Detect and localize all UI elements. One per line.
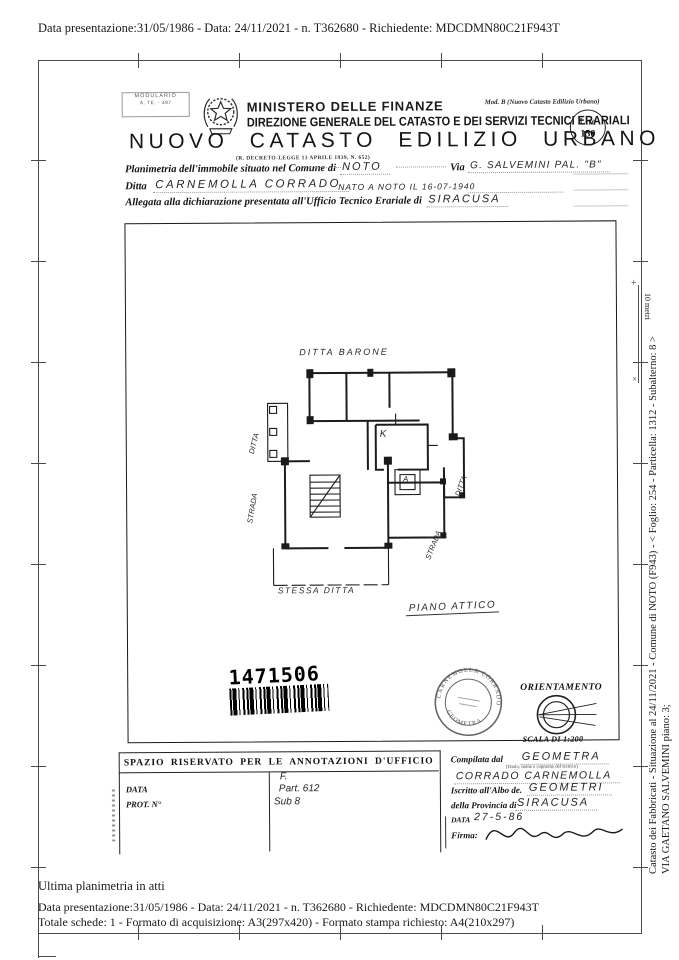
stamp-text-top: CARNEMOLLA CORRADO <box>436 662 507 709</box>
margin-caption: Catasto dei Fabbricati - Situazione al 2… <box>648 274 673 874</box>
lire-word: Lire <box>571 116 605 128</box>
gray-rule <box>573 205 628 206</box>
bottom-schede-line: Totale schede: 1 - Formato di acquisizio… <box>38 915 514 930</box>
margin-scalebar <box>638 285 639 383</box>
scale-label: SCALA DI 1:200 <box>523 735 584 744</box>
form-ditta-birth: NATO A NOTO IL 16-07-1940 <box>338 181 475 192</box>
dotted-rule <box>303 166 341 168</box>
form-via-label: Via <box>450 162 465 173</box>
form-via-value: G. SALVEMINI PAL. "B" <box>468 159 610 173</box>
gray-rule <box>573 189 628 190</box>
compiler-data-label: DATA <box>451 815 470 824</box>
margin-scalebar-top-tick: + <box>631 278 637 289</box>
annotations-hw-part: Part. 612 <box>279 783 320 794</box>
form-ufficio-label: Allegata alla dichiarazione presentata a… <box>125 195 422 208</box>
plan-label-kitchen: K <box>380 429 387 440</box>
signature <box>482 812 627 849</box>
geometra-stamp: CARNEMOLLA CORRADO GEOMETRA <box>423 657 513 747</box>
albo-label: Iscritto all'Albo de. <box>451 785 522 795</box>
mod-b-label: Mod. B (Nuovo Catasto Edilizio Urbano) <box>485 98 600 106</box>
plan-label-elevator: A <box>403 475 408 484</box>
firma-label: Firma: <box>451 830 478 840</box>
firma-tick <box>445 816 446 848</box>
provincia-value: SIRACUSA <box>515 796 597 811</box>
compiler-title-value: GEOMETRA <box>520 750 609 765</box>
lire-stamp: Lire 150 <box>570 109 606 145</box>
margin-scale-label: 10 metri <box>643 293 652 320</box>
barcode-number: 1471506 <box>228 663 328 688</box>
compiler-label: Compilata dal <box>451 754 503 764</box>
annotations-data-label: DATA <box>126 784 148 794</box>
form-ufficio-value: SIRACUSA <box>426 193 508 208</box>
printer-mark <box>112 789 115 841</box>
orientation-label: ORIENTAMENTO <box>520 682 602 692</box>
modulario-line2: A. TE. - 497 <box>123 101 189 108</box>
lire-amount: 150 <box>571 128 605 140</box>
margin-caption-line1: Catasto dei Fabbricati - Situazione al 2… <box>648 274 661 874</box>
form-ditta-value: CARNEMOLLA CORRADO <box>153 178 349 193</box>
bottom-presentation-line: Data presentazione:31/05/1986 - Data: 24… <box>38 900 539 915</box>
plan-label-stessa-ditta: STESSA DITTA <box>278 585 356 595</box>
orientation-compass-icon <box>525 692 599 736</box>
annotations-hw-sub: Sub 8 <box>274 796 300 807</box>
form-ditta-label: Ditta <box>125 181 147 192</box>
plan-label-ditta-barone: DITTA BARONE <box>299 347 389 358</box>
provincia-label: della Provincia di <box>451 800 517 810</box>
margin-scalebar-bottom-tick: × <box>632 374 637 384</box>
form-comune-value: NOTO <box>340 161 390 175</box>
ministry-title: MINISTERO DELLE FINANZE <box>247 98 444 114</box>
gray-rule <box>573 173 628 174</box>
scanned-sheet: MODULARIO A. TE. - 497 MINISTERO DELLE F… <box>0 0 679 960</box>
stamp-text-bottom: GEOMETRA <box>443 708 485 730</box>
dotted-rule <box>396 165 446 167</box>
planimetria-document-page: Data presentazione:31/05/1986 - Data: 24… <box>0 0 679 960</box>
svg-text:GEOMETRA: GEOMETRA <box>443 708 485 730</box>
ultima-planimetria-line: Ultima planimetria in atti <box>38 879 165 894</box>
svg-text:CARNEMOLLA CORRADO: CARNEMOLLA CORRADO <box>436 662 507 709</box>
floor-plan-drawing <box>247 345 479 618</box>
barcode-block: 1471506 <box>228 663 329 716</box>
modulario-box: MODULARIO A. TE. - 497 <box>122 92 190 117</box>
annotations-hw-f: F. <box>280 771 288 782</box>
annotations-prot-label: PROT. N° <box>126 799 161 809</box>
albo-value: GEOMETRI <box>527 781 612 796</box>
annotations-header: SPAZIO RISERVATO PER LE ANNOTAZIONI D'UF… <box>119 750 439 773</box>
margin-caption-line2: VIA GAETANO SALVEMINI piano: 3; <box>661 274 674 874</box>
form-comune-label: Planimetria dell'immobile situato nel Co… <box>125 163 336 175</box>
